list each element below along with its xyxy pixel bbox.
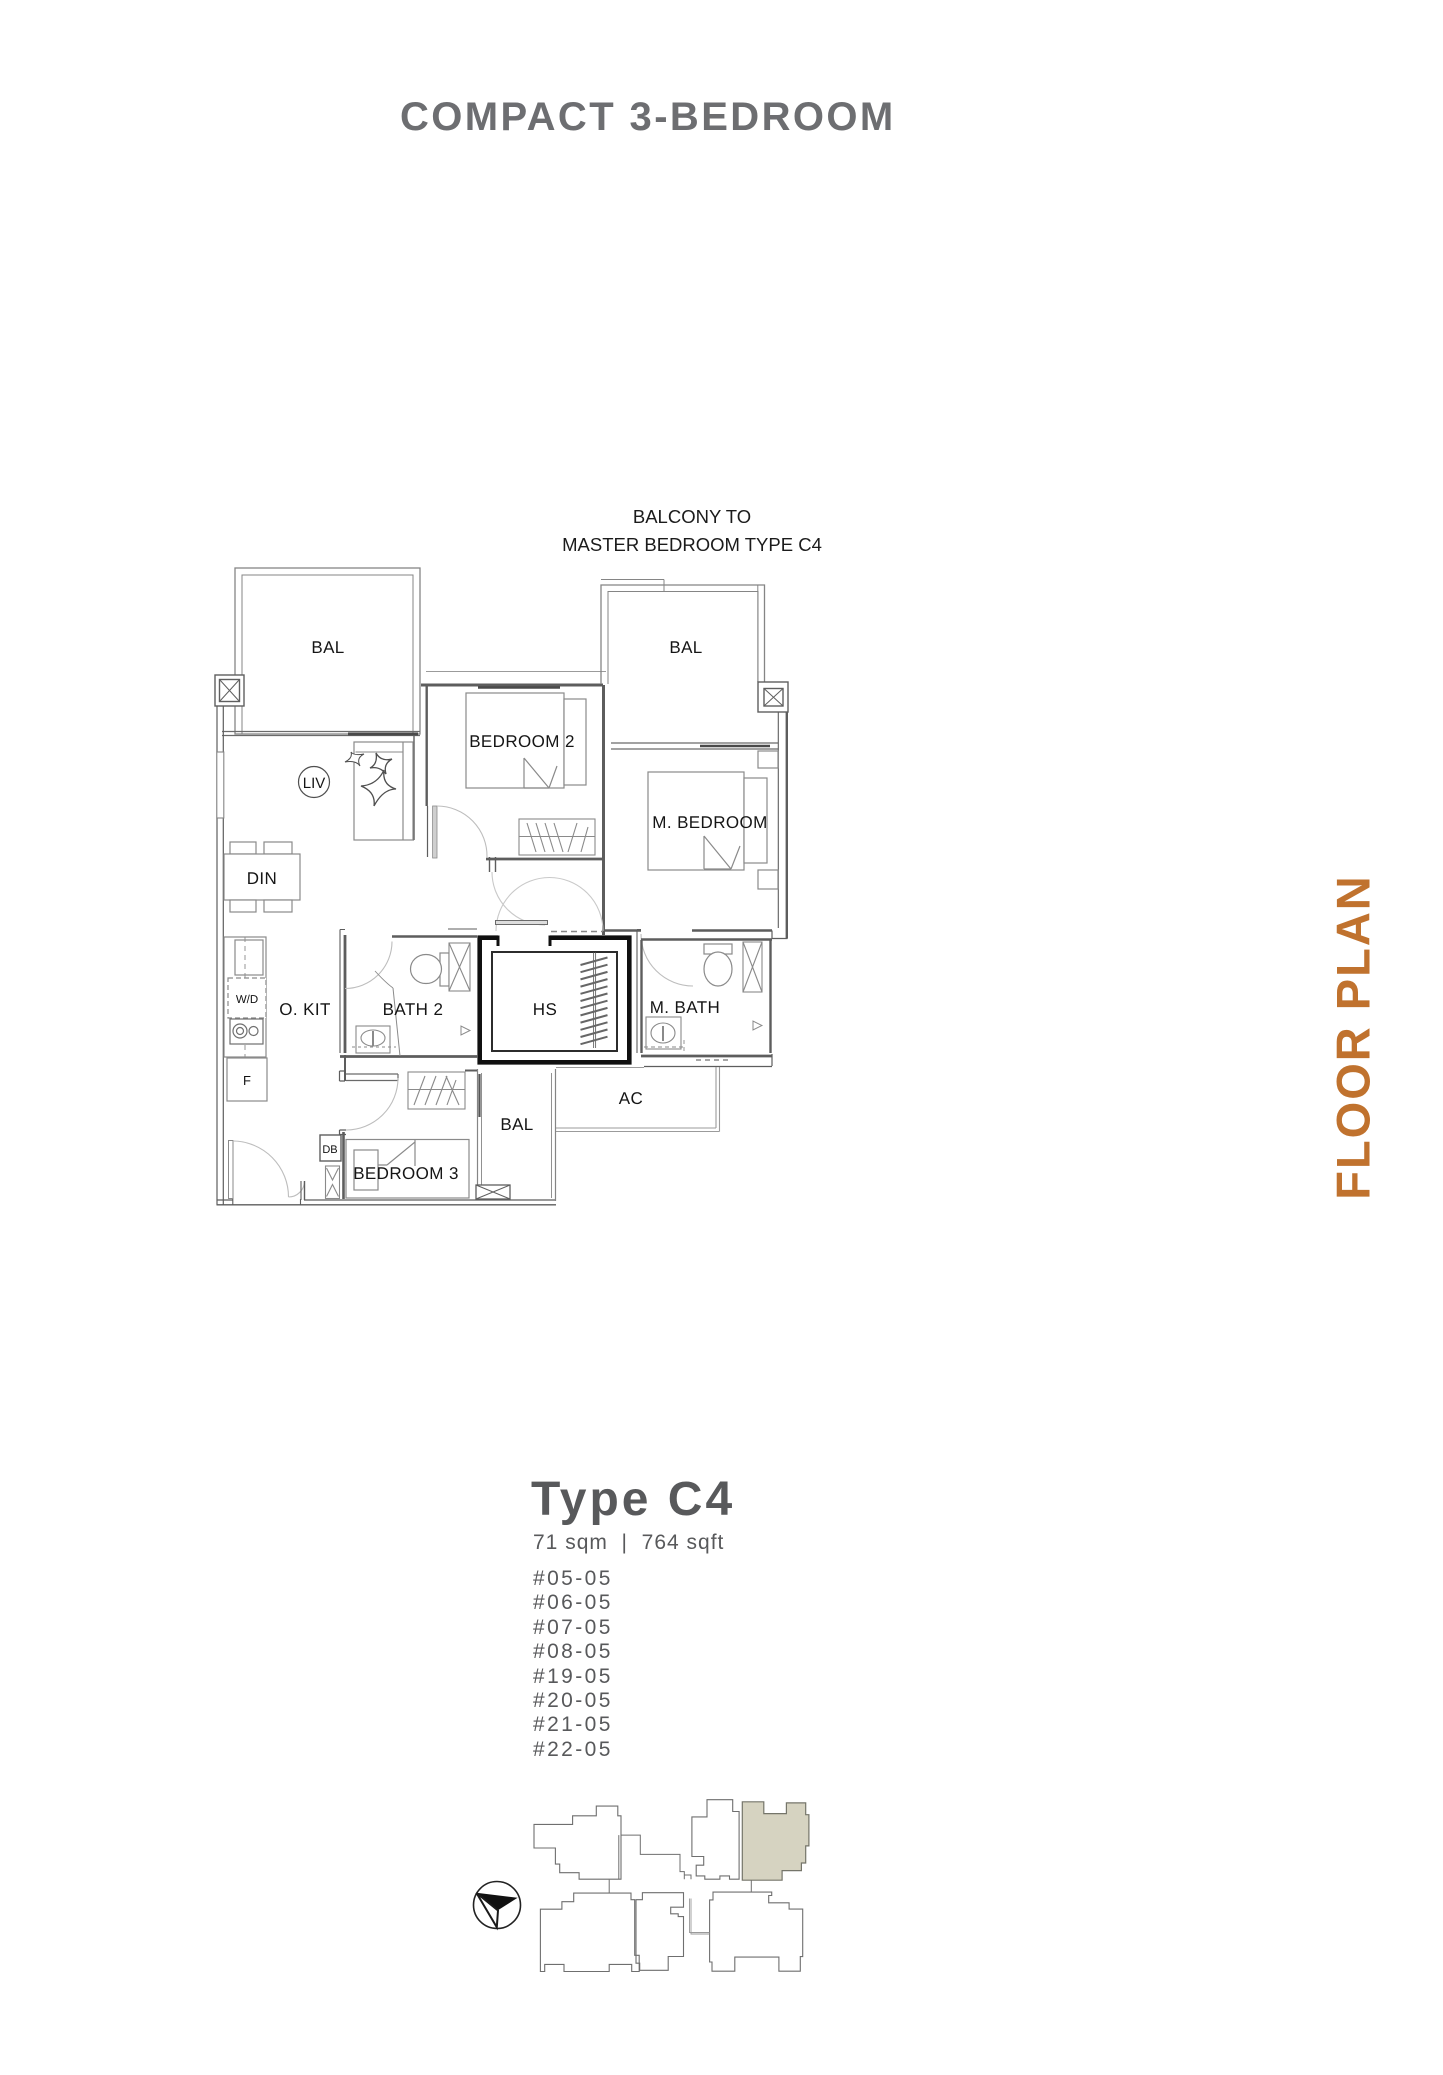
svg-text:DB: DB bbox=[322, 1144, 337, 1156]
svg-text:W/D: W/D bbox=[236, 994, 258, 1006]
svg-text:M. BATH: M. BATH bbox=[650, 998, 721, 1017]
svg-text:BAL: BAL bbox=[500, 1115, 533, 1134]
svg-text:LIV: LIV bbox=[303, 775, 326, 792]
svg-text:BEDROOM 2: BEDROOM 2 bbox=[469, 732, 575, 751]
svg-text:DIN: DIN bbox=[247, 869, 277, 888]
svg-text:HS: HS bbox=[533, 1000, 557, 1019]
svg-text:AC: AC bbox=[619, 1089, 643, 1108]
svg-text:M. BEDROOM: M. BEDROOM bbox=[652, 813, 767, 832]
svg-text:F: F bbox=[243, 1073, 251, 1088]
svg-text:O. KIT: O. KIT bbox=[279, 1000, 331, 1019]
svg-text:BEDROOM 3: BEDROOM 3 bbox=[353, 1164, 459, 1183]
svg-text:BAL: BAL bbox=[311, 638, 344, 657]
svg-text:BAL: BAL bbox=[669, 638, 702, 657]
svg-text:BATH 2: BATH 2 bbox=[383, 1000, 444, 1019]
